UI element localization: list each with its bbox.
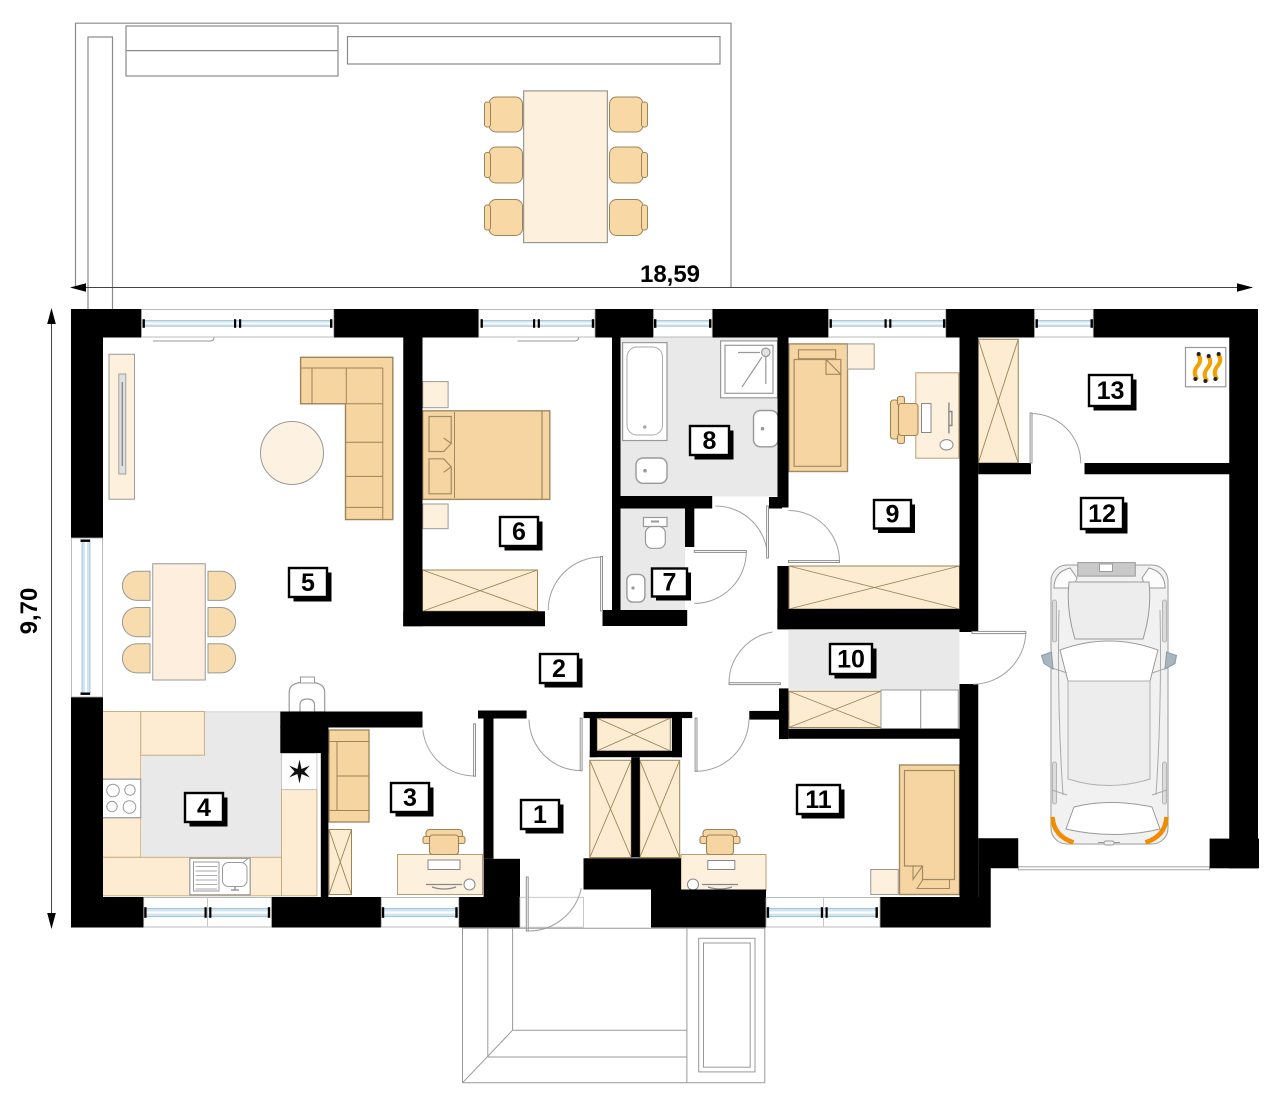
svg-text:2: 2: [552, 655, 566, 683]
svg-text:5: 5: [301, 569, 315, 597]
svg-text:6: 6: [512, 518, 526, 546]
svg-text:12: 12: [1088, 500, 1116, 528]
svg-text:9,70: 9,70: [16, 588, 43, 635]
svg-text:1: 1: [533, 801, 547, 829]
svg-text:18,59: 18,59: [640, 261, 700, 288]
svg-text:10: 10: [837, 646, 865, 674]
svg-text:11: 11: [805, 786, 832, 814]
svg-text:7: 7: [663, 569, 677, 597]
svg-text:8: 8: [703, 427, 717, 455]
svg-text:9: 9: [886, 501, 900, 529]
svg-text:4: 4: [197, 794, 211, 822]
svg-text:13: 13: [1097, 377, 1125, 405]
svg-text:3: 3: [403, 784, 417, 812]
